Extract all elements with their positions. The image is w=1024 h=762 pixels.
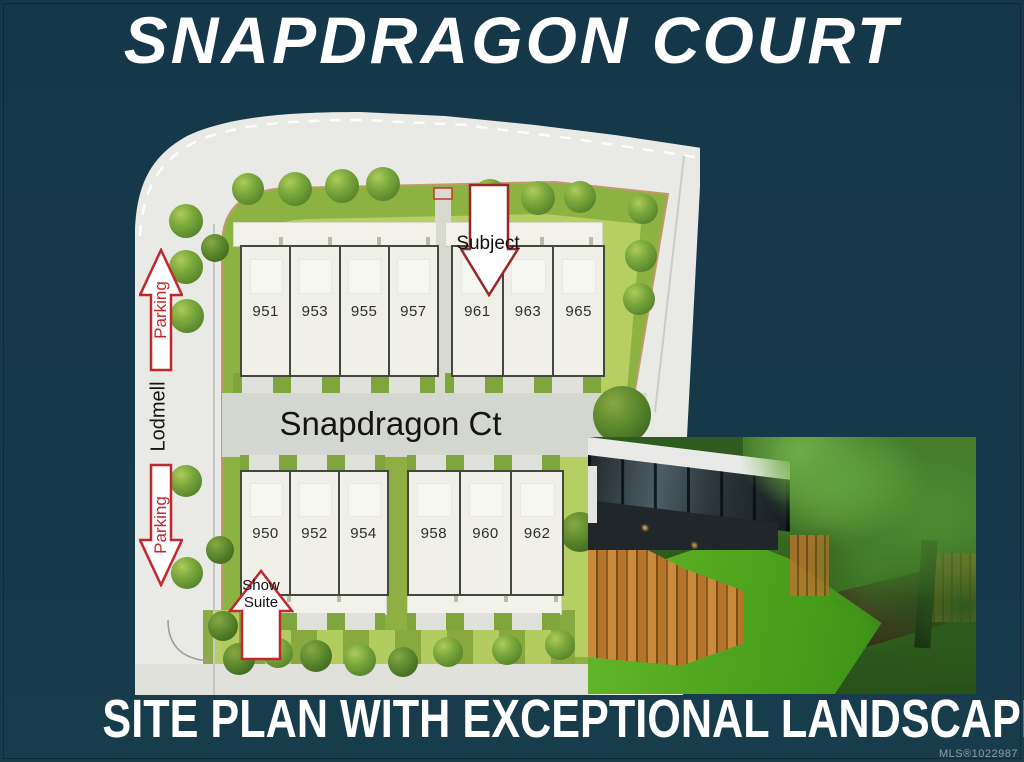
parking-label-upper: Parking [139,248,183,372]
hedge-strip [240,455,385,470]
building-bottom-right: 958 960 962 [407,470,564,596]
parking-label-lower: Parking [139,463,183,587]
unit-cell: 960 [459,472,511,594]
unit-cell: 953 [289,247,338,375]
street-label-lodmell: Lodmell [137,374,181,458]
unit-cell: 957 [388,247,437,375]
hedge-strip [407,455,560,470]
landscape-photo [588,437,976,694]
unit-cell: 951 [242,247,289,375]
unit-cell: 958 [409,472,459,594]
unit-cell: 955 [339,247,388,375]
mls-number: MLS®1022987 [939,748,1018,760]
street-label-snapdragon-ct: Snapdragon Ct [253,404,528,444]
unit-cell: 952 [289,472,338,594]
page-title: SNAPDRAGON COURT [0,0,1024,83]
unit-cell: 962 [510,472,562,594]
caption: SITE PLAN WITH EXCEPTIONAL LANDSCAPE [102,688,921,750]
photo-foliage-overlay [588,437,976,694]
building-top-left: 951 953 955 957 [240,245,439,377]
walkway-top-gate [434,188,452,199]
hedge-strip [407,613,560,630]
unit-cell: 954 [338,472,387,594]
subject-label: Subject [451,233,525,255]
building-back-top-left [233,222,437,247]
listing-image: { "title": "SNAPDRAGON COURT", "caption"… [0,0,1024,762]
show-suite-label: Show Suite [228,577,294,611]
unit-cell: 965 [552,247,603,375]
